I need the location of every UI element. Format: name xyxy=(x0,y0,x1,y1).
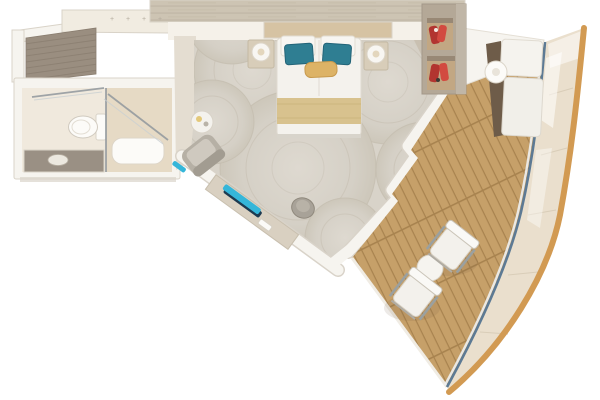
lounger-table-center xyxy=(492,68,500,76)
wardrobe xyxy=(422,4,466,94)
overhead-wood-panel xyxy=(150,0,465,22)
bathroom xyxy=(14,78,180,182)
floor-plan-stage: + + + + xyxy=(0,0,600,400)
tick-mark-3: + xyxy=(142,16,146,23)
gold-accent-pillow xyxy=(305,61,338,78)
entry-side-wall xyxy=(12,30,24,82)
lamp-right-center xyxy=(373,51,380,58)
red-shoes-bottom xyxy=(428,63,449,83)
tick-mark-1: + xyxy=(110,16,114,23)
side-table-item-gray xyxy=(204,122,209,127)
teal-pillow-left xyxy=(284,43,313,65)
bed-foot-shadow xyxy=(277,134,361,138)
gold-bed-runner xyxy=(277,98,361,124)
toilet xyxy=(69,114,107,140)
side-table-item-gold xyxy=(196,116,202,122)
tick-mark-2: + xyxy=(126,16,130,23)
shower-tray xyxy=(112,138,164,164)
wall-shadow xyxy=(20,177,176,182)
sink xyxy=(48,155,68,166)
balcony-lounger xyxy=(485,39,543,137)
cell-shadow xyxy=(427,18,453,23)
side-table xyxy=(191,111,213,133)
cell-shadow xyxy=(427,56,455,61)
floor-plan-canvas: + + + + xyxy=(0,0,600,400)
tick-mark-4: + xyxy=(158,16,162,23)
dark-wood-closet-top xyxy=(26,28,96,82)
lounger-cushion-bottom xyxy=(502,77,544,137)
lamp-left-center xyxy=(258,49,265,56)
wardrobe-side xyxy=(456,4,466,94)
